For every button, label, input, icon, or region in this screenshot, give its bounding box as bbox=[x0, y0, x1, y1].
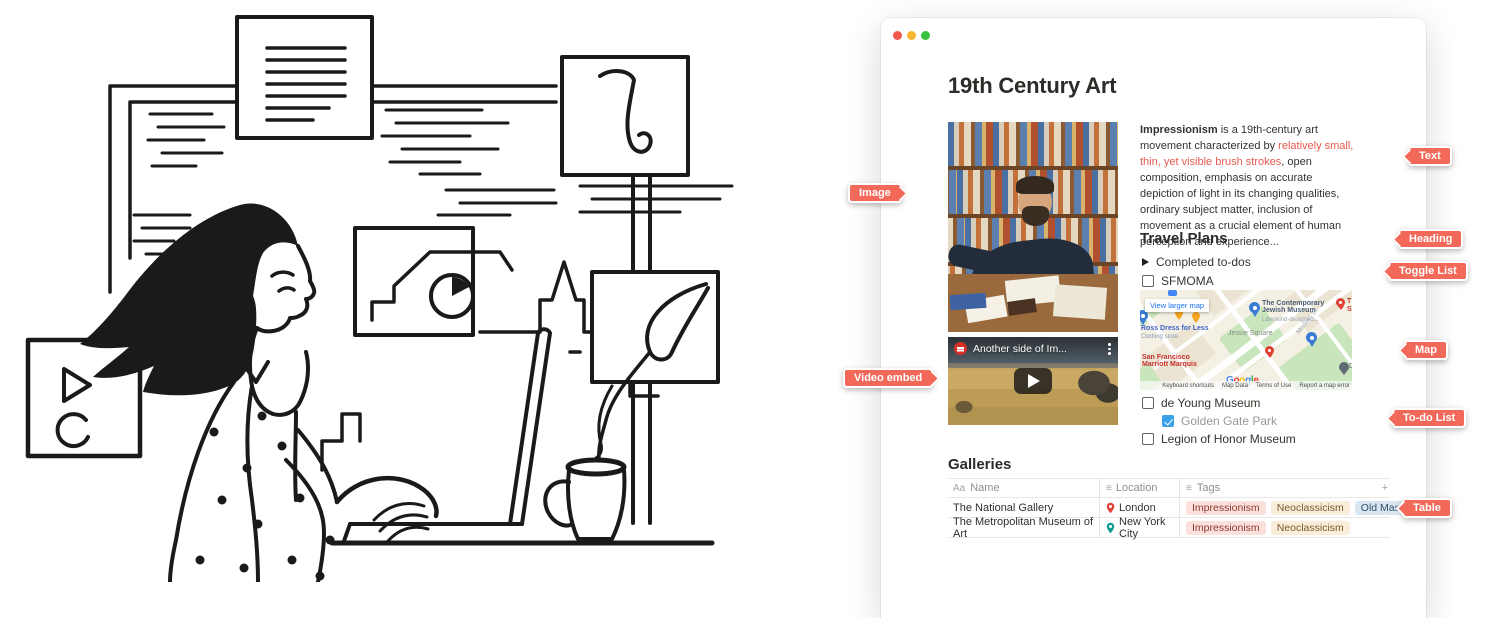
galleries-heading: Galleries bbox=[948, 456, 1011, 473]
toggle-list-item[interactable]: Completed to-dos bbox=[1142, 254, 1251, 270]
todo-item-deyoung[interactable]: de Young Museum bbox=[1142, 395, 1260, 411]
eye bbox=[279, 288, 294, 291]
toggle-triangle-icon[interactable] bbox=[1142, 258, 1149, 266]
checkbox-checked[interactable] bbox=[1162, 415, 1174, 427]
callout-table: Table bbox=[1402, 498, 1452, 518]
page-title: 19th Century Art bbox=[948, 73, 1116, 99]
chart-card bbox=[355, 228, 512, 335]
column-header-tags[interactable]: ≡Tags bbox=[1179, 479, 1374, 497]
callout-todo-list: To-do List bbox=[1392, 408, 1466, 428]
collar bbox=[242, 362, 268, 382]
eyebrow bbox=[272, 272, 293, 276]
checkbox[interactable] bbox=[1142, 397, 1154, 409]
video-title[interactable]: Another side of Im... bbox=[973, 343, 1067, 355]
museum-pin[interactable] bbox=[1249, 302, 1260, 313]
column-header-location[interactable]: ≡Location bbox=[1099, 479, 1179, 497]
teal-pin-icon bbox=[1106, 522, 1115, 534]
map-label: Jessie Square bbox=[1228, 330, 1272, 337]
sketch-card bbox=[592, 272, 718, 458]
woman-at-laptop-illustration bbox=[0, 0, 740, 582]
close-button[interactable] bbox=[893, 31, 902, 40]
tag-pill[interactable]: Neoclassicism bbox=[1271, 521, 1350, 535]
galleries-table: AaName ≡Location ≡Tags + The National Ga… bbox=[948, 478, 1390, 538]
map-label: T bbox=[1347, 298, 1351, 305]
channel-avatar[interactable] bbox=[954, 342, 967, 355]
view-larger-map-button[interactable]: View larger map bbox=[1145, 299, 1209, 312]
table-header-row: AaName ≡Location ≡Tags + bbox=[948, 478, 1390, 498]
checkbox[interactable] bbox=[1142, 275, 1154, 287]
note-card bbox=[562, 57, 688, 175]
map-label: Clothing store bbox=[1141, 334, 1178, 340]
map-attribution: Keyboard shortcuts Map Data Terms of Use… bbox=[1140, 381, 1352, 390]
figure-beard bbox=[1022, 206, 1049, 226]
poi-pin[interactable] bbox=[1306, 332, 1317, 343]
poi-pin[interactable] bbox=[1339, 362, 1349, 372]
kebab-menu-icon[interactable] bbox=[1108, 343, 1111, 356]
app-window: 19th Century Art Impressionism is a 19th… bbox=[881, 18, 1426, 618]
checkbox[interactable] bbox=[1142, 433, 1154, 445]
blue-book bbox=[950, 293, 987, 310]
travel-plans-heading: Travel Plans bbox=[1140, 230, 1228, 247]
tag-pill[interactable]: Impressionism bbox=[1186, 501, 1266, 515]
map-poi-icon bbox=[1168, 290, 1177, 296]
multiselect-property-icon: ≡ bbox=[1186, 483, 1192, 494]
hand-on-chin bbox=[250, 328, 300, 415]
play-button[interactable] bbox=[1014, 368, 1052, 394]
body-left bbox=[170, 382, 234, 582]
video-embed[interactable]: Another side of Im... bbox=[948, 337, 1118, 425]
tag-pill[interactable]: Impressionism bbox=[1186, 521, 1266, 535]
tag-pill[interactable]: Neoclassicism bbox=[1271, 501, 1350, 515]
poi-pin[interactable] bbox=[1192, 312, 1200, 320]
hotel-pin[interactable] bbox=[1265, 346, 1274, 355]
select-property-icon: ≡ bbox=[1106, 483, 1112, 494]
title-property-icon: Aa bbox=[953, 483, 965, 494]
callout-map: Map bbox=[1404, 340, 1448, 360]
map-label: Ross Dress for Less bbox=[1141, 325, 1209, 332]
column-header-name[interactable]: AaName bbox=[948, 482, 1099, 494]
figure-hair bbox=[1016, 176, 1054, 194]
todo-item-goldengate[interactable]: Golden Gate Park bbox=[1162, 413, 1277, 429]
table-row[interactable]: The Metropolitan Museum of Art New York … bbox=[948, 518, 1390, 538]
minimize-button[interactable] bbox=[907, 31, 916, 40]
map-embed[interactable]: The ContemporaryJewish Museum Libeskind-… bbox=[1140, 290, 1352, 390]
coffee-mug bbox=[545, 460, 624, 539]
red-pin-icon bbox=[1106, 502, 1115, 514]
callout-heading: Heading bbox=[1398, 229, 1463, 249]
callout-text: Text bbox=[1408, 146, 1452, 166]
todo-item-sfmoma[interactable]: SFMOMA bbox=[1142, 273, 1214, 289]
document-card bbox=[237, 17, 372, 138]
map-label: S bbox=[1347, 306, 1352, 313]
callout-image: Image bbox=[848, 183, 902, 203]
zoom-button[interactable] bbox=[921, 31, 930, 40]
laptop bbox=[344, 329, 550, 541]
map-label: D bbox=[1349, 363, 1352, 370]
add-column-button[interactable]: + bbox=[1374, 482, 1390, 494]
todo-item-legion[interactable]: Legion of Honor Museum bbox=[1142, 431, 1296, 447]
callout-video-embed: Video embed bbox=[843, 368, 933, 388]
poi-pin[interactable] bbox=[1336, 298, 1345, 307]
callout-toggle-list: Toggle List bbox=[1388, 261, 1468, 281]
painting-image[interactable] bbox=[948, 122, 1118, 332]
map-label: San FranciscoMarriott Marquis bbox=[1142, 354, 1197, 368]
